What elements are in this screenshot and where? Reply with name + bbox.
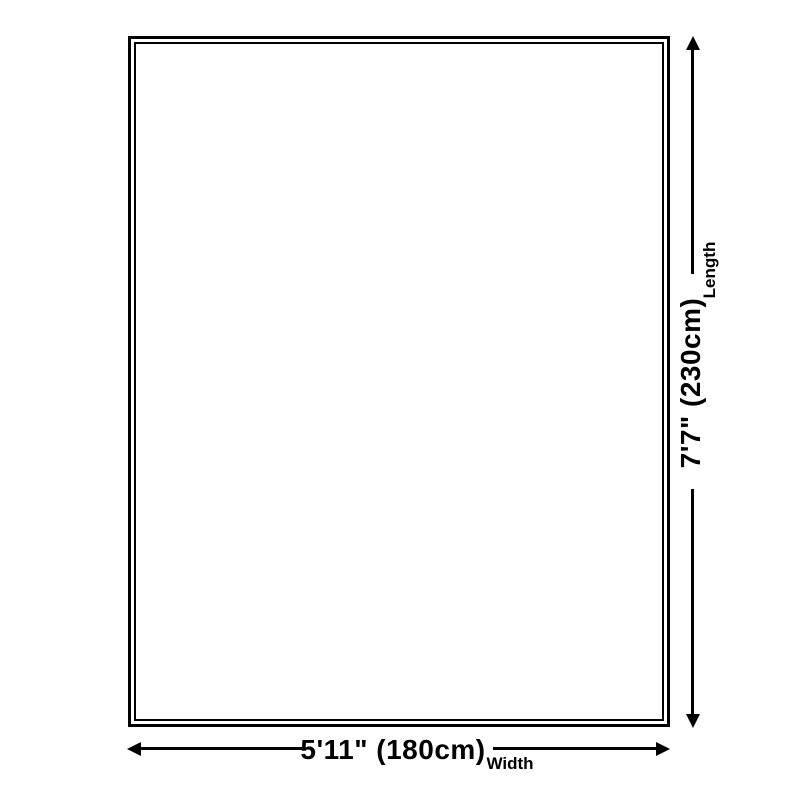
length-dimension-line-top <box>691 46 694 274</box>
arrow-down-icon <box>686 714 700 728</box>
rug-outline-outer <box>128 36 670 727</box>
width-dimension-line-right <box>493 747 660 750</box>
width-axis-label: Width <box>486 754 533 774</box>
width-value-label: 5'11" (180cm) <box>300 734 485 766</box>
arrow-right-icon <box>656 742 670 756</box>
length-value-label: 7'7" (230cm) <box>675 298 707 469</box>
rug-dimension-diagram: 7'7" (230cm) Length 5'11" (180cm) Width <box>0 0 800 800</box>
rug-outline-inner <box>134 42 664 721</box>
width-dimension-line-left <box>137 747 303 750</box>
length-axis-label: Length <box>700 242 720 299</box>
length-dimension-line-bottom <box>691 489 694 718</box>
